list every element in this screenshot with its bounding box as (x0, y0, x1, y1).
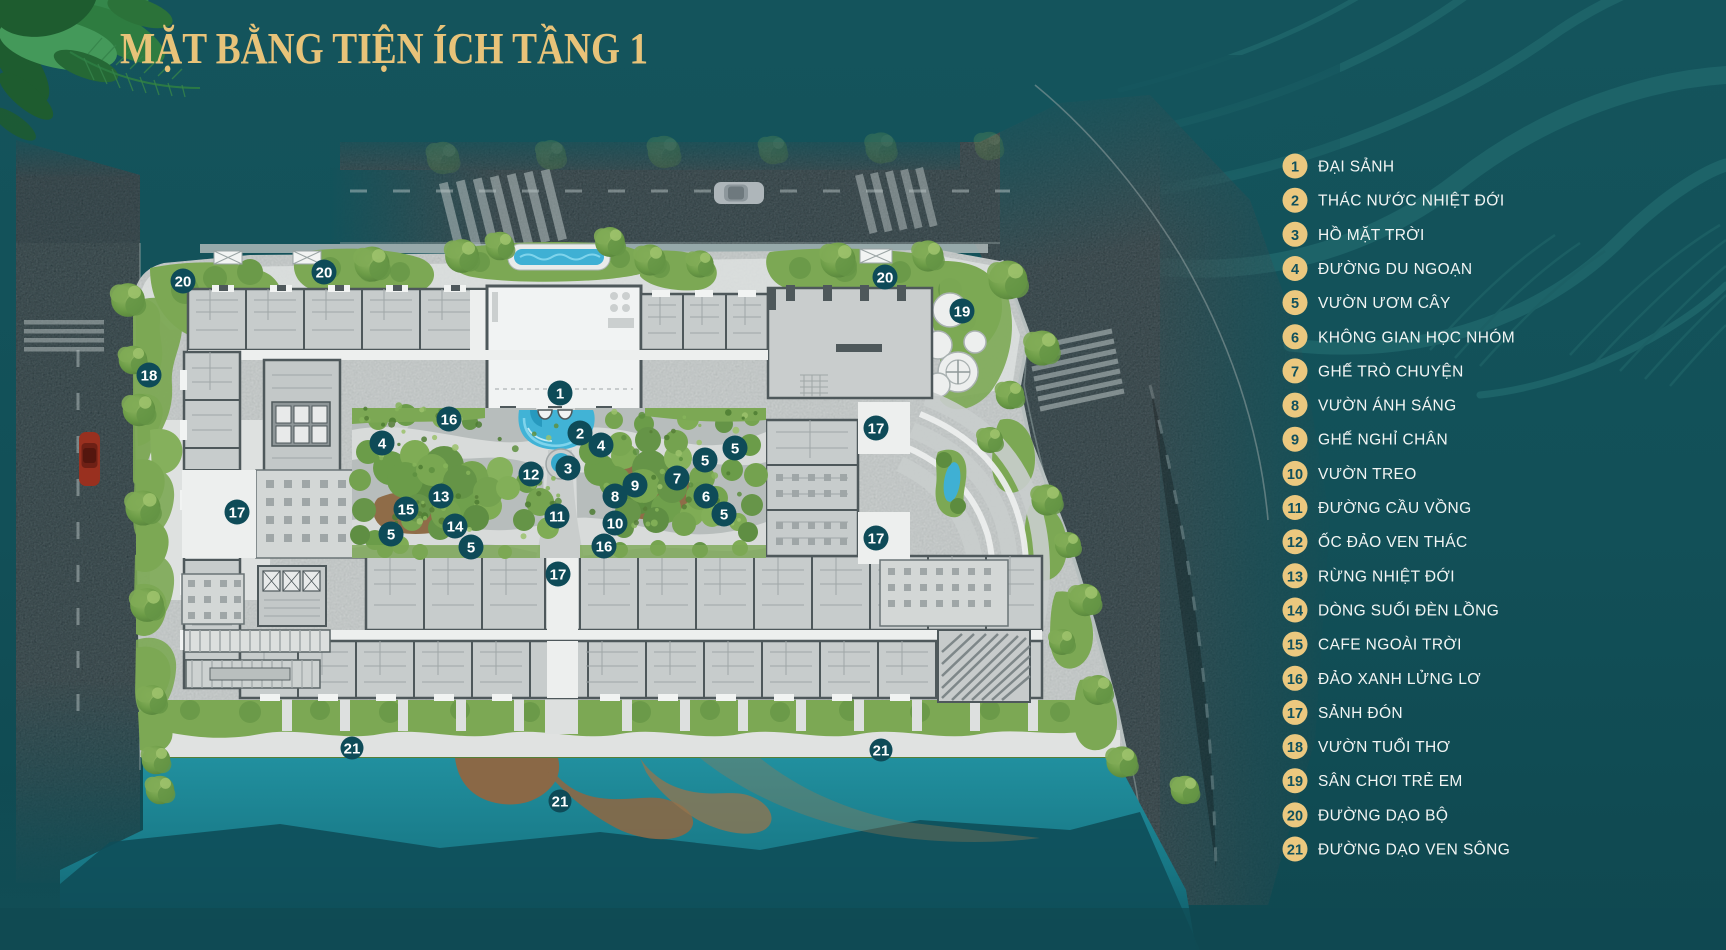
svg-text:16: 16 (596, 539, 613, 556)
svg-text:10: 10 (1287, 467, 1303, 483)
svg-text:DÒNG SUỐI ĐÈN LỒNG: DÒNG SUỐI ĐÈN LỒNG (1318, 602, 1499, 620)
svg-text:5: 5 (1291, 296, 1299, 312)
svg-text:THÁC NƯỚC NHIỆT ĐỚI: THÁC NƯỚC NHIỆT ĐỚI (1318, 193, 1505, 210)
svg-text:21: 21 (344, 741, 361, 758)
svg-text:4: 4 (1291, 262, 1299, 278)
svg-text:KHÔNG GIAN HỌC NHÓM: KHÔNG GIAN HỌC NHÓM (1318, 329, 1515, 346)
svg-text:6: 6 (702, 489, 710, 506)
svg-text:ĐƯỜNG DẠO VEN SÔNG: ĐƯỜNG DẠO VEN SÔNG (1318, 842, 1510, 859)
svg-text:17: 17 (550, 567, 567, 584)
svg-text:19: 19 (954, 304, 971, 321)
svg-text:6: 6 (1291, 330, 1299, 346)
svg-text:SÂN CHƠI TRẺ EM: SÂN CHƠI TRẺ EM (1318, 773, 1463, 790)
svg-text:ĐẢO XANH LỬNG LƠ: ĐẢO XANH LỬNG LƠ (1318, 670, 1481, 688)
svg-text:16: 16 (441, 412, 458, 429)
svg-text:12: 12 (523, 467, 540, 484)
svg-text:19: 19 (1287, 774, 1303, 790)
svg-text:HỒ MẶT TRỜI: HỒ MẶT TRỜI (1318, 226, 1425, 244)
svg-text:8: 8 (611, 489, 619, 506)
svg-text:GHẾ NGHỈ CHÂN: GHẾ NGHỈ CHÂN (1318, 432, 1448, 449)
svg-text:CAFE NGOÀI TRỜI: CAFE NGOÀI TRỜI (1318, 637, 1462, 654)
svg-text:2: 2 (1291, 194, 1299, 210)
svg-text:4: 4 (378, 436, 387, 453)
svg-text:17: 17 (868, 421, 885, 438)
svg-text:9: 9 (631, 478, 639, 495)
svg-text:14: 14 (447, 519, 464, 536)
svg-text:14: 14 (1287, 604, 1303, 620)
svg-text:5: 5 (720, 507, 728, 524)
svg-text:VƯỜN ÁNH SÁNG: VƯỜN ÁNH SÁNG (1318, 398, 1457, 415)
svg-text:20: 20 (1287, 808, 1303, 824)
svg-text:ĐƯỜNG CẦU VỒNG: ĐƯỜNG CẦU VỒNG (1318, 499, 1472, 517)
svg-text:9: 9 (1291, 433, 1299, 449)
svg-text:11: 11 (549, 509, 565, 526)
svg-text:ĐẠI SẢNH: ĐẠI SẢNH (1318, 159, 1394, 176)
svg-text:VƯỜN TREO: VƯỜN TREO (1318, 466, 1417, 483)
svg-text:21: 21 (552, 794, 569, 811)
svg-text:VƯỜN TUỔI THƠ: VƯỜN TUỔI THƠ (1318, 738, 1450, 756)
svg-text:ĐƯỜNG DẠO BỘ: ĐƯỜNG DẠO BỘ (1318, 807, 1448, 824)
svg-text:RỪNG NHIỆT ĐỚI: RỪNG NHIỆT ĐỚI (1318, 568, 1455, 585)
svg-text:16: 16 (1287, 672, 1303, 688)
svg-text:ĐƯỜNG DU NGOẠN: ĐƯỜNG DU NGOẠN (1318, 261, 1472, 278)
svg-text:15: 15 (1287, 638, 1303, 654)
svg-text:17: 17 (1287, 706, 1303, 722)
svg-text:20: 20 (877, 270, 894, 287)
svg-text:2: 2 (576, 426, 584, 443)
svg-text:7: 7 (673, 471, 681, 488)
svg-text:1: 1 (556, 386, 564, 403)
svg-text:8: 8 (1291, 399, 1299, 415)
svg-text:18: 18 (141, 368, 158, 385)
svg-text:13: 13 (433, 489, 450, 506)
svg-text:ỐC ĐẢO VEN THÁC: ỐC ĐẢO VEN THÁC (1318, 533, 1468, 551)
svg-text:20: 20 (175, 274, 192, 291)
svg-text:20: 20 (316, 265, 333, 282)
svg-text:5: 5 (701, 453, 709, 470)
svg-text:VƯỜN ƯƠM CÂY: VƯỜN ƯƠM CÂY (1318, 295, 1451, 312)
svg-text:5: 5 (467, 540, 475, 557)
svg-text:GHẾ TRÒ CHUYỆN: GHẾ TRÒ CHUYỆN (1318, 363, 1464, 380)
svg-text:21: 21 (1287, 843, 1303, 859)
svg-text:11: 11 (1287, 501, 1302, 517)
svg-text:5: 5 (731, 441, 739, 458)
svg-text:15: 15 (398, 502, 415, 519)
svg-text:13: 13 (1287, 569, 1303, 585)
svg-text:3: 3 (564, 461, 572, 478)
svg-text:12: 12 (1287, 535, 1303, 551)
svg-text:17: 17 (868, 531, 885, 548)
svg-text:4: 4 (597, 438, 606, 455)
svg-text:10: 10 (607, 516, 624, 533)
svg-text:7: 7 (1291, 364, 1299, 380)
svg-text:21: 21 (873, 743, 890, 760)
svg-text:1: 1 (1291, 160, 1299, 176)
svg-text:3: 3 (1291, 228, 1299, 244)
svg-text:5: 5 (387, 527, 395, 544)
svg-text:17: 17 (229, 505, 246, 522)
svg-text:MẶT BẰNG TIỆN ÍCH TẦNG 1: MẶT BẰNG TIỆN ÍCH TẦNG 1 (120, 23, 648, 73)
svg-text:18: 18 (1287, 740, 1303, 756)
svg-text:SẢNH ĐÓN: SẢNH ĐÓN (1318, 705, 1403, 722)
